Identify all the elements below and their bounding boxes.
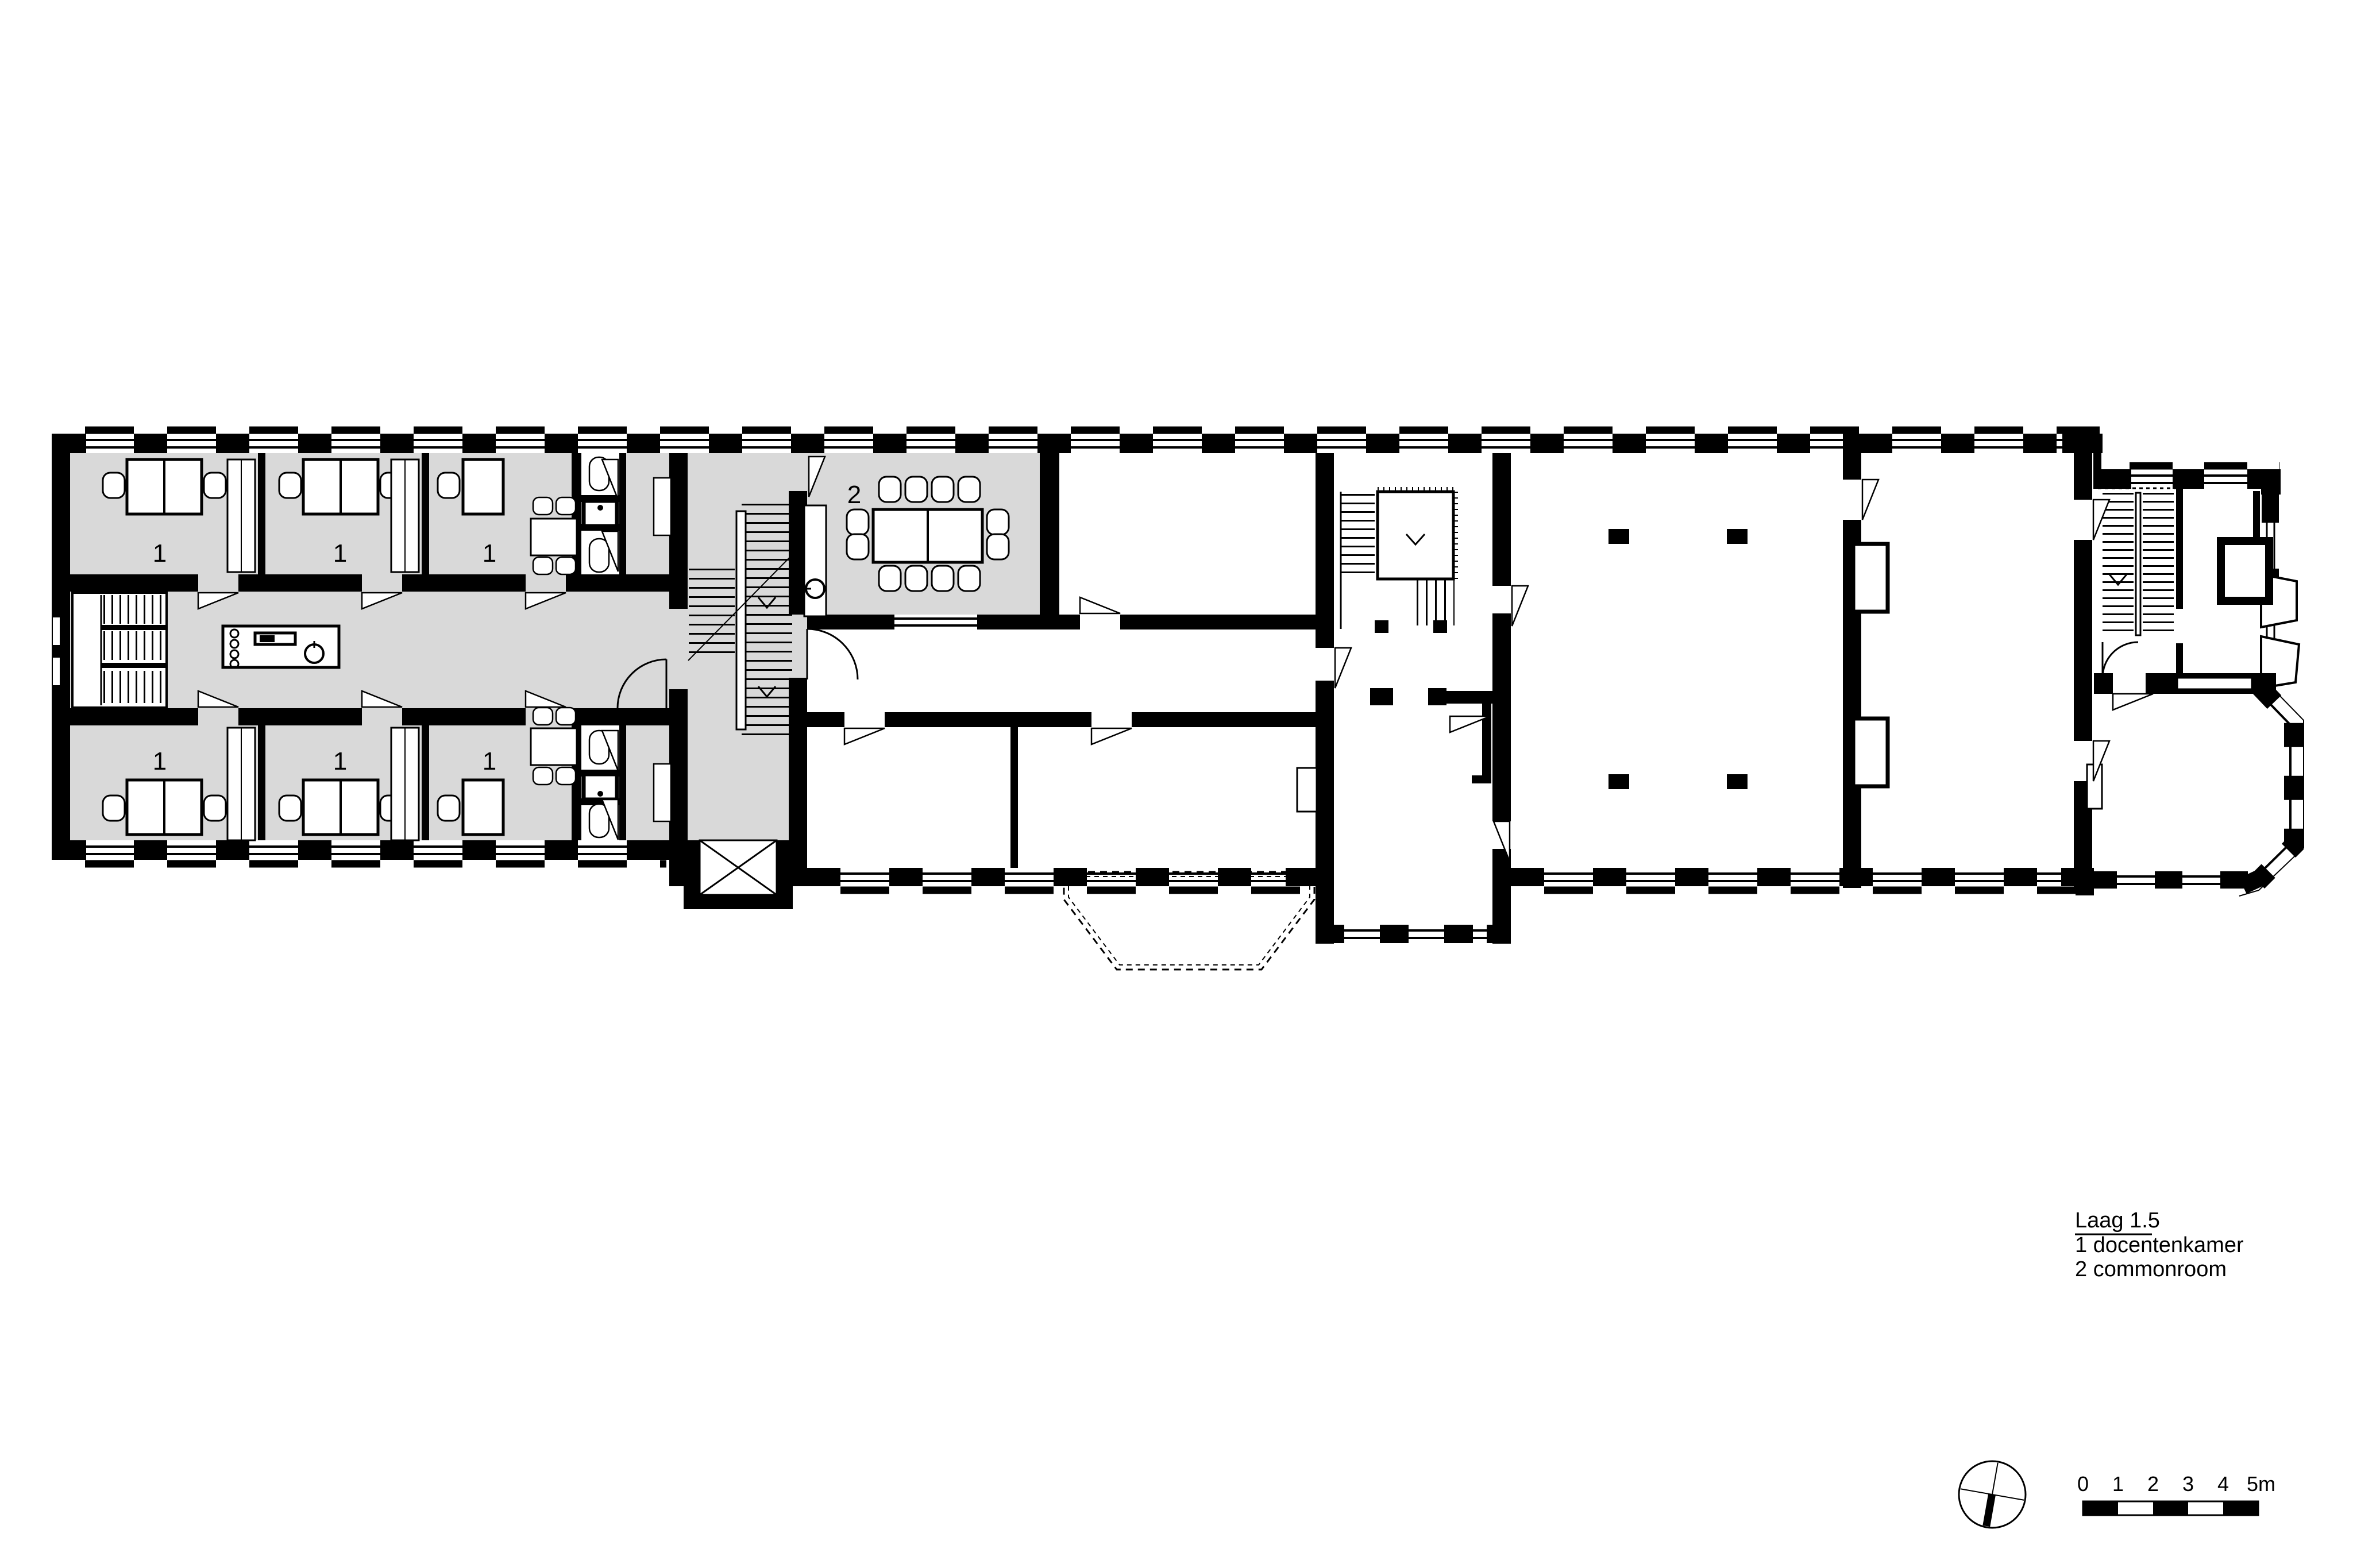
closet [2221, 541, 2269, 601]
columns [1608, 529, 1748, 789]
scale-tick-5m: 5m [2247, 1472, 2275, 1496]
room-label-docentenkamer: 1 [333, 747, 347, 775]
room-label-docentenkamer: 1 [153, 539, 167, 567]
legend: Laag 1.5 1 docentenkamer 2 commonroom [2075, 1208, 2244, 1281]
room-label-docentenkamer: 1 [153, 747, 167, 775]
legend-item-docentenkamer: 1 docentenkamer [2075, 1233, 2244, 1257]
scale-bar: 0 1 2 3 4 5m [2077, 1472, 2275, 1515]
scale-tick-0: 0 [2077, 1472, 2089, 1496]
stairs-northeast [2098, 488, 2177, 635]
room-label-docentenkamer: 1 [483, 747, 496, 775]
room-label-docentenkamer: 1 [333, 539, 347, 567]
service-shaft-top [584, 501, 617, 526]
scale-tick-4: 4 [2217, 1472, 2229, 1496]
floor-plan-canvas: 1 1 1 1 1 1 2 Laag 1.5 1 docentenkamer 2… [0, 0, 2353, 1568]
counter [804, 505, 826, 616]
kitchen-island [223, 626, 339, 668]
elevator [684, 840, 793, 909]
architectural-sheet: 1 1 1 1 1 1 2 Laag 1.5 1 docentenkamer 2… [0, 0, 2353, 1568]
scale-tick-3: 3 [2182, 1472, 2194, 1496]
radiator-niche [1853, 544, 1888, 612]
radiator-niche [1853, 719, 1888, 786]
stairs-central [1341, 489, 1456, 629]
compass-needle [1982, 1494, 1996, 1527]
north-arrow [1955, 1457, 2030, 1532]
plan-title: Laag 1.5 [2075, 1208, 2160, 1233]
radiator-niche [1297, 768, 1317, 812]
scale-tick-2: 2 [2147, 1472, 2159, 1496]
scale-tick-1: 1 [2112, 1472, 2124, 1496]
room-label-commonroom: 2 [847, 481, 861, 509]
room-label-docentenkamer: 1 [483, 539, 496, 567]
legend-item-commonroom: 2 commonroom [2075, 1257, 2227, 1281]
